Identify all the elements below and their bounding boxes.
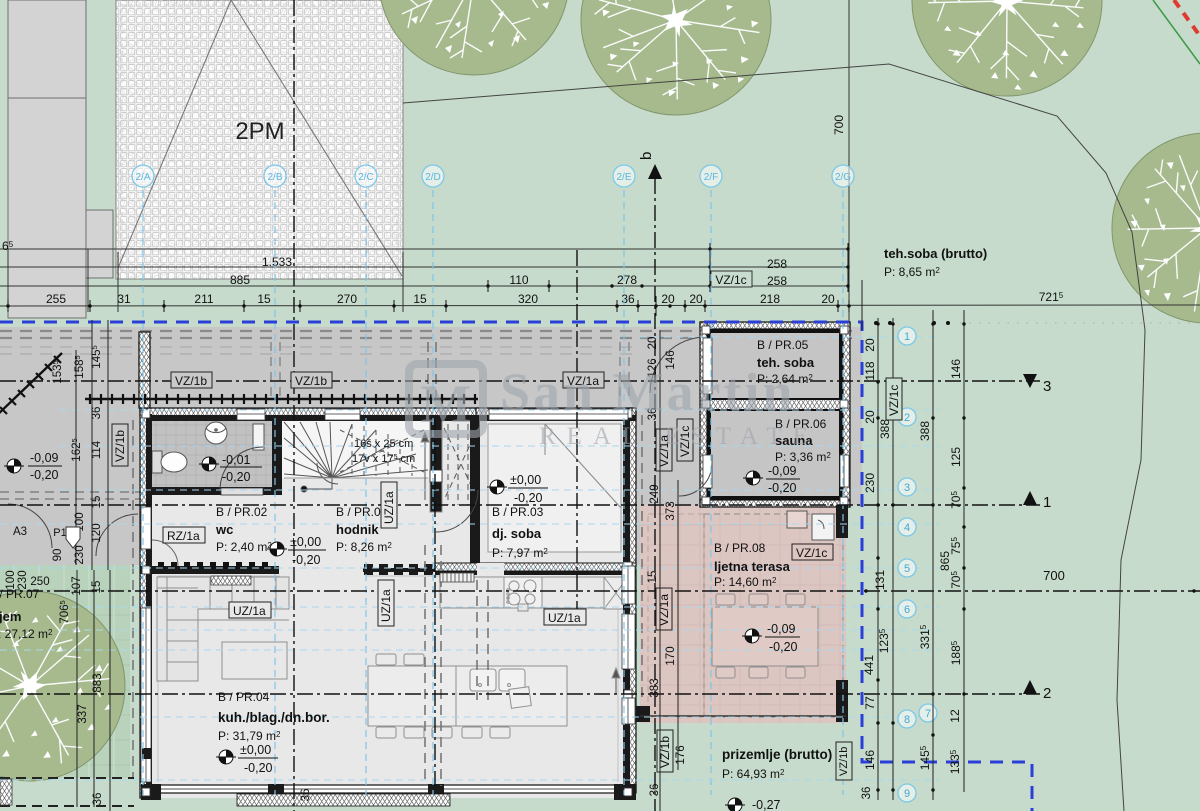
svg-text:2PM: 2PM [235,118,284,145]
svg-text:170: 170 [665,646,677,665]
svg-text:36: 36 [861,787,873,800]
svg-text:RZ/1a: RZ/1a [167,529,200,543]
svg-text:hodnik: hodnik [336,522,379,537]
svg-text:UZ/1a: UZ/1a [382,491,396,524]
svg-text:VZ/1b: VZ/1b [838,747,850,776]
svg-text:90: 90 [52,549,64,562]
svg-text:2/F: 2/F [704,172,718,183]
svg-text:M: M [421,374,472,434]
svg-text:8: 8 [904,714,910,726]
svg-text:-0,01: -0,01 [222,453,251,467]
svg-text:211: 211 [194,292,213,306]
svg-text:250: 250 [30,576,49,588]
svg-text:B / PR.08: B / PR.08 [714,541,766,555]
svg-text:VZ/1b: VZ/1b [113,430,127,462]
svg-text:1: 1 [1043,494,1051,511]
svg-text:249: 249 [649,484,661,503]
svg-text:77: 77 [863,696,877,710]
svg-text:P: 3,36 m2: P: 3,36 m2 [775,450,831,464]
svg-text:17v x 175 cm: 17v x 175 cm [352,453,415,465]
svg-text:885: 885 [230,273,250,287]
svg-text:P: 8,26 m2: P: 8,26 m2 [336,540,392,554]
svg-text:-0,20: -0,20 [514,491,543,505]
svg-text:146: 146 [863,750,877,770]
svg-text:B / PR.03: B / PR.03 [492,505,544,519]
svg-text:San Martin: San Martin [500,362,796,422]
svg-text:388: 388 [918,421,932,441]
svg-text:±0,00: ±0,00 [510,473,541,487]
svg-text:12: 12 [948,709,962,723]
svg-text:31: 31 [117,292,131,306]
svg-text:wc: wc [215,522,233,537]
svg-text:P: 31,79 m2: P: 31,79 m2 [218,729,281,743]
svg-text:VZ/1a: VZ/1a [657,594,671,626]
svg-text:20: 20 [821,292,835,306]
svg-text:441: 441 [862,655,876,675]
svg-text:P1: P1 [53,527,66,539]
svg-text:2/C: 2/C [358,172,374,183]
svg-text:5: 5 [904,563,910,575]
svg-text:-0,09: -0,09 [30,451,59,465]
svg-text:-0,27: -0,27 [752,798,781,811]
svg-text:383: 383 [649,678,661,697]
svg-text:A3: A3 [13,526,27,538]
svg-text:20: 20 [647,337,659,350]
svg-text:2/E: 2/E [616,172,631,183]
svg-text:-0,20: -0,20 [292,553,321,567]
svg-text:15: 15 [257,292,271,306]
svg-text:218: 218 [760,292,780,306]
svg-text:107: 107 [71,576,83,595]
svg-text:7: 7 [925,708,931,720]
svg-text:36: 36 [649,784,661,797]
svg-text:-0,20: -0,20 [769,640,798,654]
svg-text:258: 258 [767,274,787,288]
svg-text:±0,00: ±0,00 [290,535,321,549]
svg-text:VZ/1c: VZ/1c [796,546,827,560]
svg-text:-0,09: -0,09 [767,622,796,636]
svg-text:P: 64,93 m2: P: 64,93 m2 [722,767,785,781]
svg-text:1.533: 1.533 [262,255,292,269]
svg-text:36: 36 [300,789,312,802]
svg-text:P: 14,60 m2: P: 14,60 m2 [714,575,777,589]
svg-text:-0,09: -0,09 [768,464,797,478]
svg-text:230: 230 [17,570,29,589]
svg-text:-0,20: -0,20 [222,470,251,484]
svg-text:dj. soba: dj. soba [492,526,542,541]
svg-text:110: 110 [509,273,528,287]
svg-text:270: 270 [337,292,357,306]
svg-text:3: 3 [904,482,910,494]
svg-text:P: 27,12 m2: P: 27,12 m2 [0,627,53,641]
svg-text:16š x 25 cm: 16š x 25 cm [354,438,413,450]
svg-text:36: 36 [92,793,104,806]
svg-text:15: 15 [91,496,103,509]
svg-text:kuh./blag./dn.bor.: kuh./blag./dn.bor. [218,710,330,725]
svg-text:B / PR.05: B / PR.05 [757,338,809,352]
svg-text:B / PR.04: B / PR.04 [218,690,270,704]
svg-text:2/D: 2/D [425,172,441,183]
svg-text:3: 3 [1043,378,1051,395]
svg-text:-0,20: -0,20 [30,468,59,482]
svg-text:prizemlje (brutto): prizemlje (brutto) [722,747,832,762]
svg-text:P: 7,97 m2: P: 7,97 m2 [492,546,548,560]
svg-text:278: 278 [617,273,637,287]
svg-text:VZ/1b: VZ/1b [295,374,327,388]
svg-text:36: 36 [621,292,635,306]
svg-text:125: 125 [949,447,963,467]
svg-text:VZ/1c: VZ/1c [887,385,901,416]
svg-text:20: 20 [863,410,877,424]
svg-text:2/G: 2/G [835,172,851,183]
svg-text:118: 118 [863,361,877,380]
svg-text:883: 883 [92,673,104,692]
svg-text:6: 6 [904,604,910,616]
svg-text:388: 388 [878,419,892,439]
svg-text:4: 4 [904,522,910,534]
svg-text:UZ/1a: UZ/1a [233,604,266,618]
svg-text:114: 114 [91,440,103,459]
svg-text:UZ/1a: UZ/1a [548,611,581,625]
svg-text:2/B: 2/B [267,172,282,183]
svg-text:146: 146 [949,359,963,379]
svg-text:15: 15 [413,292,427,306]
svg-text:B / PR.02: B / PR.02 [216,505,268,519]
svg-text:UZ/1a: UZ/1a [379,589,393,622]
svg-text:-0,20: -0,20 [244,761,273,775]
svg-text:373: 373 [665,501,677,520]
svg-text:100: 100 [5,570,17,589]
svg-text:230: 230 [863,473,877,493]
svg-text:20: 20 [661,292,675,306]
svg-text:P: 8,65 m2: P: 8,65 m2 [884,265,940,279]
svg-text:865: 865 [938,551,952,571]
svg-text:120: 120 [91,523,103,542]
svg-text:15: 15 [647,571,659,584]
svg-text:230: 230 [74,545,86,564]
svg-text:1: 1 [904,331,910,343]
svg-text:trijem: trijem [0,609,21,624]
svg-text:2/A: 2/A [135,172,150,183]
svg-text:320: 320 [518,292,538,306]
svg-text:2: 2 [904,412,910,424]
svg-text:20: 20 [863,338,877,352]
svg-text:700: 700 [1043,568,1065,583]
svg-text:2: 2 [1043,685,1051,702]
svg-text:176: 176 [675,745,687,764]
svg-text:b: b [638,152,655,160]
svg-text:VZ/1b: VZ/1b [175,374,207,388]
svg-text:P: 2,40 m2: P: 2,40 m2 [216,540,272,554]
svg-text:131: 131 [873,570,887,590]
svg-text:REAL ESTATE: REAL ESTATE [539,423,819,450]
svg-text:15: 15 [91,581,103,594]
svg-text:258: 258 [767,257,787,271]
svg-text:20: 20 [689,292,703,306]
svg-text:ljetna terasa: ljetna terasa [714,559,791,574]
svg-text:-0,20: -0,20 [768,481,797,495]
svg-text:36: 36 [91,407,103,420]
svg-text:VZ/1c: VZ/1c [715,273,746,287]
svg-text:9: 9 [904,788,910,800]
svg-text:337: 337 [77,704,89,723]
svg-text:700: 700 [832,115,846,135]
svg-text:255: 255 [46,292,66,306]
svg-text:teh.soba (brutto): teh.soba (brutto) [884,246,987,261]
svg-text:B / PR.01: B / PR.01 [336,505,388,519]
svg-text:±0,00: ±0,00 [240,743,271,757]
